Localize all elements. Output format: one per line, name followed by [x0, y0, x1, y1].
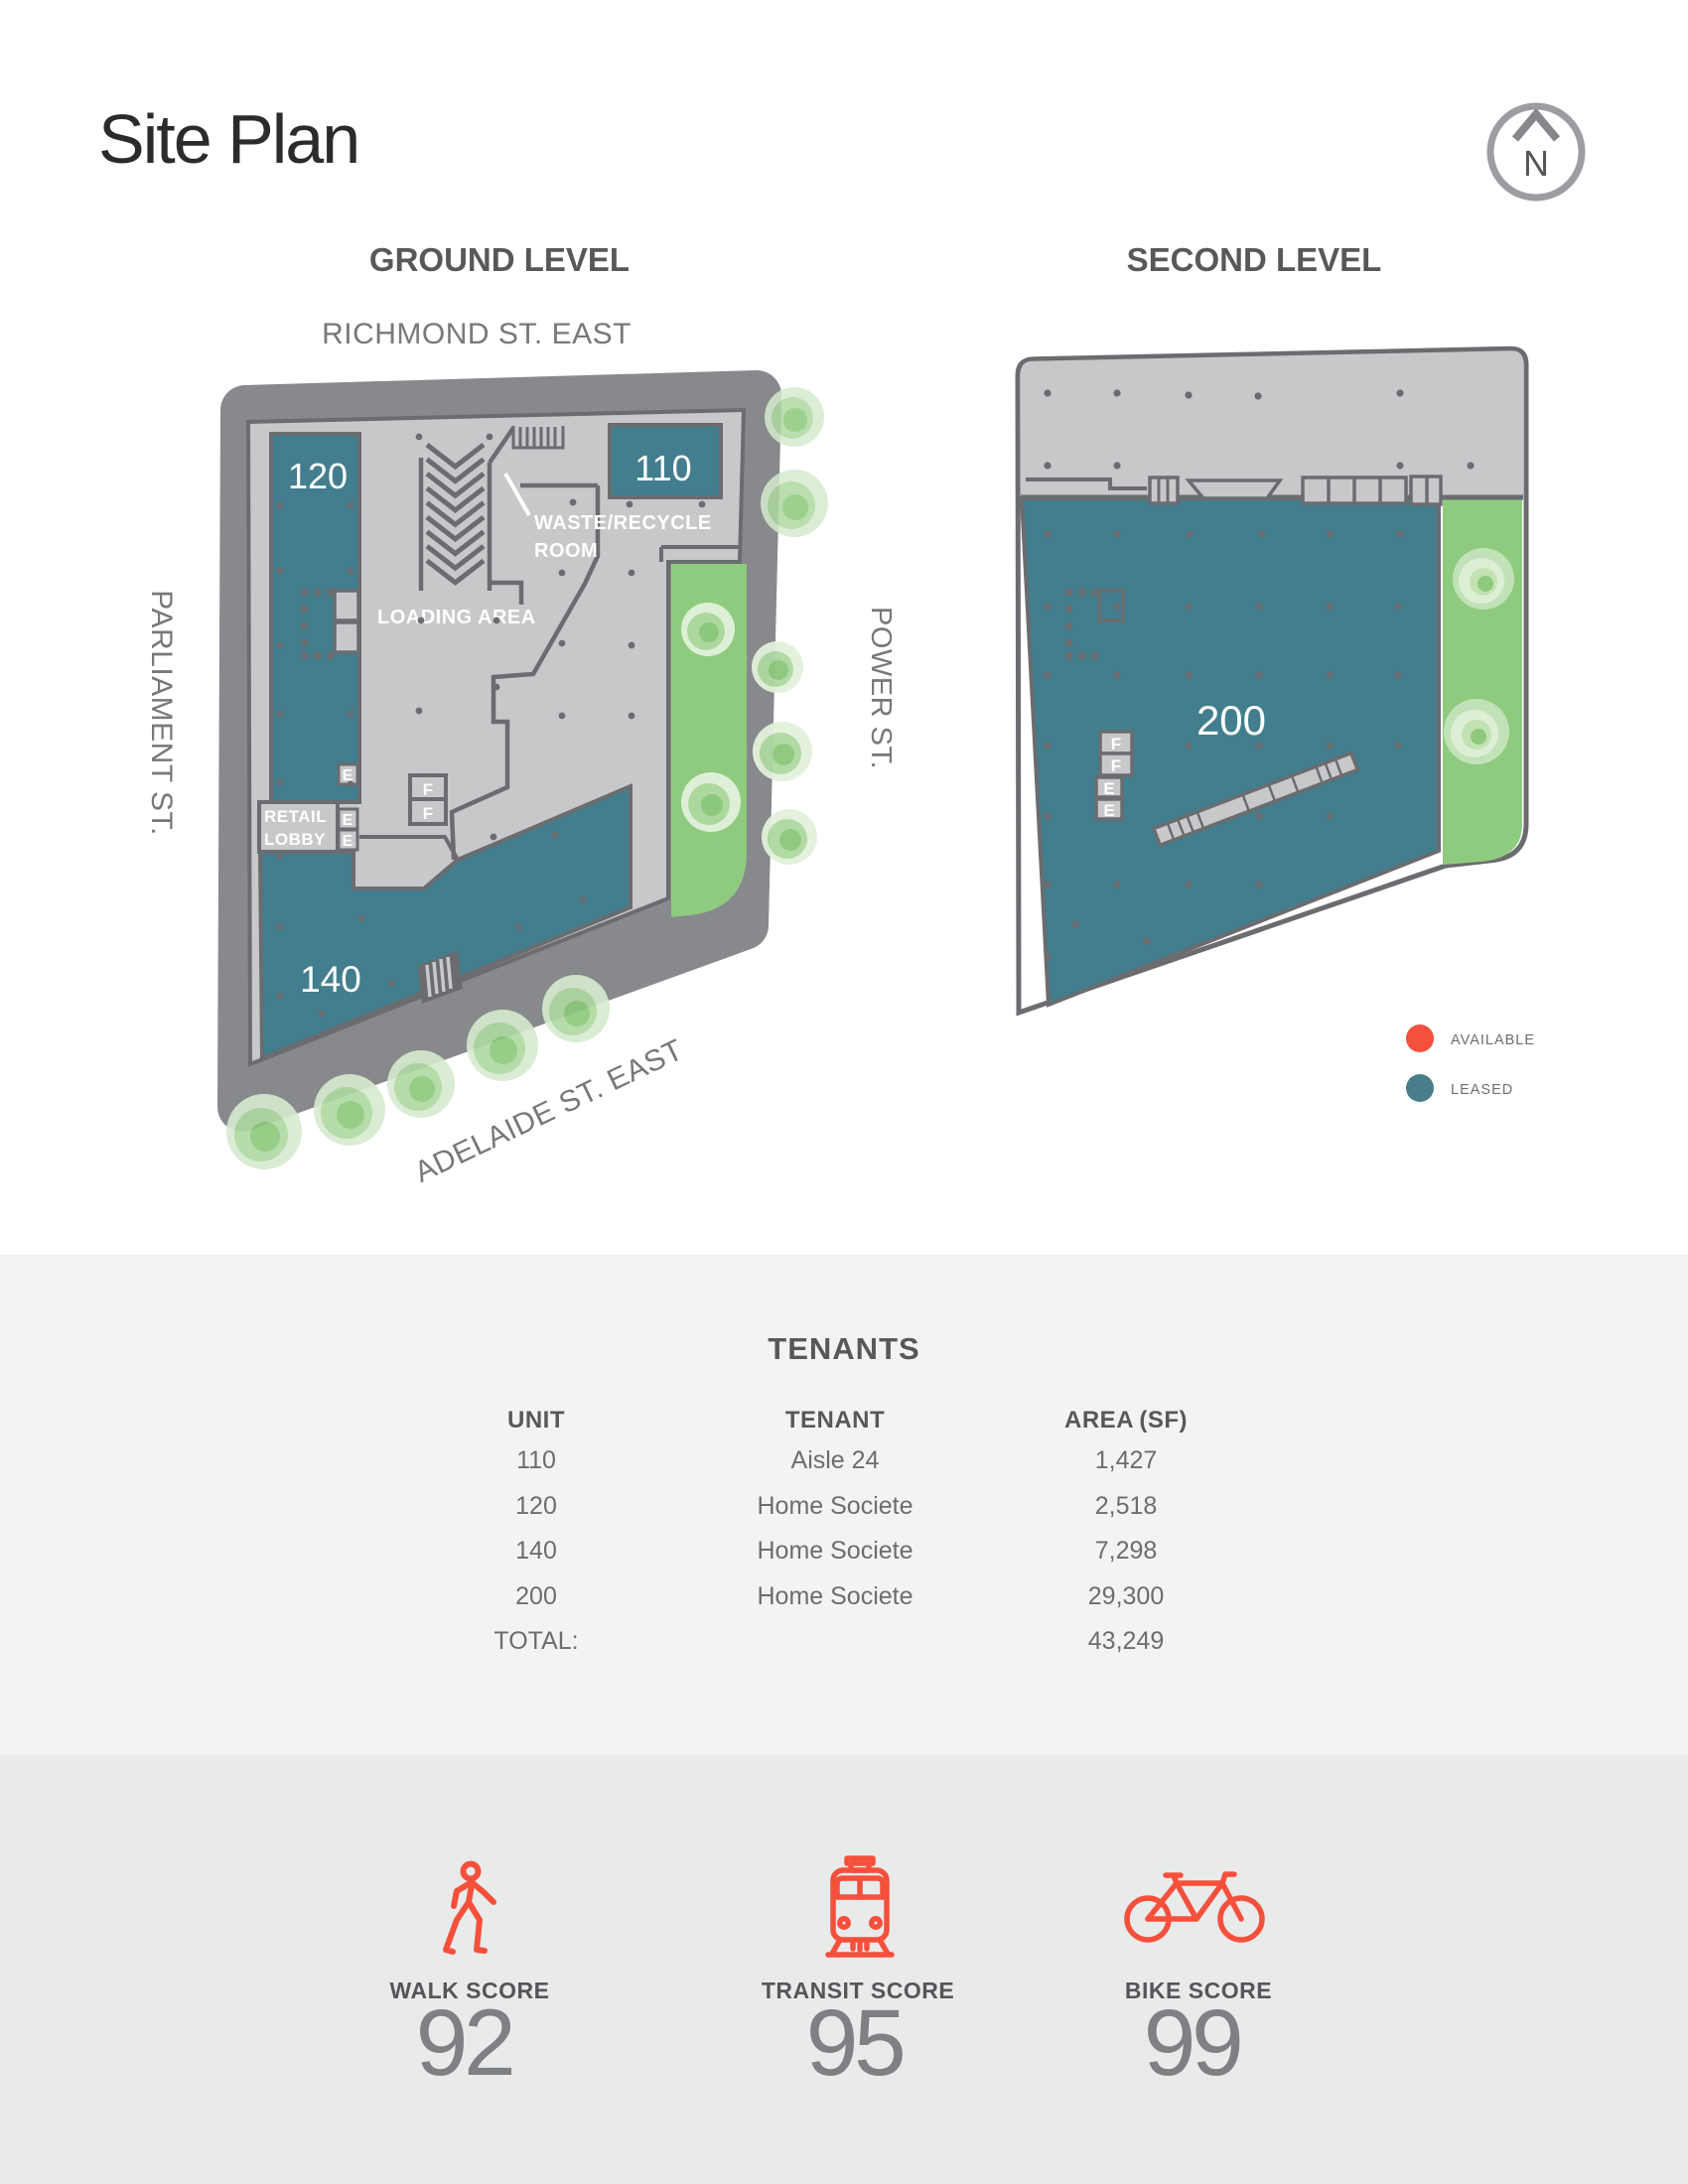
svg-text:POWER ST.: POWER ST.	[865, 607, 897, 769]
svg-text:200: 200	[1196, 697, 1266, 744]
svg-text:E: E	[1103, 801, 1114, 820]
svg-text:AVAILABLE: AVAILABLE	[1451, 1032, 1535, 1048]
svg-text:140: 140	[300, 959, 361, 1000]
svg-text:F: F	[1111, 735, 1121, 753]
svg-text:E: E	[1103, 779, 1114, 798]
svg-text:E: E	[343, 833, 353, 850]
svg-text:120: 120	[288, 456, 348, 496]
svg-text:RICHMOND ST. EAST: RICHMOND ST. EAST	[322, 318, 632, 350]
svg-text:PARLIAMENT ST.: PARLIAMENT ST.	[145, 590, 178, 836]
svg-text:ROOM: ROOM	[534, 540, 598, 562]
svg-text:LOADING AREA: LOADING AREA	[377, 607, 536, 628]
svg-text:WASTE/RECYCLE: WASTE/RECYCLE	[534, 512, 712, 534]
svg-text:LEASED: LEASED	[1451, 1082, 1513, 1098]
svg-text:F: F	[423, 780, 433, 799]
svg-text:RETAIL: RETAIL	[264, 807, 327, 826]
svg-text:LOBBY: LOBBY	[264, 830, 326, 849]
svg-text:F: F	[1111, 756, 1121, 775]
svg-text:F: F	[423, 804, 433, 823]
svg-text:110: 110	[634, 448, 691, 488]
svg-text:E: E	[343, 812, 353, 829]
